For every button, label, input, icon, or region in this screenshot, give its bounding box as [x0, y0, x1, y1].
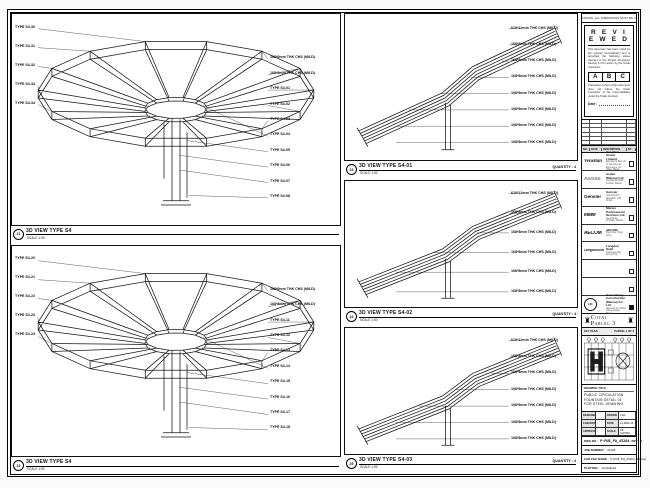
grade-a: A: [589, 73, 603, 81]
view-title: 3D VIEW TYPE S4-01: [359, 163, 412, 169]
detail-bubble: 21: [13, 229, 24, 240]
detail-number: 22: [17, 464, 21, 468]
structure-drawing: [345, 181, 577, 307]
status-checkbox: [629, 161, 635, 167]
key-plan: [582, 336, 636, 385]
signoff-table: DESIGNED- DRAWNCAD CHECKED- DATE14-MAR-1…: [582, 412, 636, 437]
quantity-label: QUANTITY : 4: [553, 459, 577, 463]
view-scale: SCALE 1:50: [359, 171, 576, 175]
consultant-row: VenetianVenetian Orient LimitedEstrada d…: [582, 153, 636, 171]
plot-row: PLOTTED : 14-MAR-16: [582, 464, 636, 472]
view-scale: SCALE 1:50: [26, 467, 339, 471]
project-name: Cotai Parcel 3: [591, 315, 628, 327]
drawing-title-label: DRAWING TITLE :: [584, 386, 634, 392]
view-title: 3D VIEW TYPE S4-02: [359, 310, 412, 316]
consultant-address: Avenida da Amizade, Macau: [606, 218, 627, 223]
view-title-row: 23 3D VIEW TYPE S4-01QUANTITY : 4 SCALE …: [344, 161, 578, 180]
quantity-label: QUANTITY : 4: [553, 165, 577, 169]
cad-file-row: CAD FILE NAME : P-PUB_PQ_45204_S4.dwg: [582, 455, 636, 464]
consultant-address: Avenida da Praia Grande, Macau: [606, 180, 627, 185]
consultant-name: Langdon Seah: [606, 245, 627, 252]
view-title-row: 25 3D VIEW TYPE S4-03QUANTITY : 4 SCALE …: [344, 455, 578, 474]
detail-bubble: 22: [13, 460, 24, 471]
drawing-sheet: TYPE S4-30TYPE S4-31TYPE S4-32TYPE S4-33…: [7, 9, 641, 477]
consultant-row: MMMMacau Professional Services Ltd.Aveni…: [582, 207, 636, 225]
stamp-title: R E V I E W E D: [588, 28, 630, 46]
consultant-logo: LangdonSeah: [584, 249, 604, 252]
view-3d-type-s4-bottom: TYPE S4-20TYPE S4-21TYPE S4-22TYPE S4-23…: [11, 245, 341, 458]
review-stamp: R E V I E W E D This document has been n…: [584, 25, 634, 117]
view-3d-type-s4-top: TYPE S4-30TYPE S4-31TYPE S4-32TYPE S4-33…: [11, 13, 341, 226]
detail-number: 21: [17, 232, 21, 236]
stamp-date-row: Date :: [588, 101, 630, 106]
drawing-title-line: FOR STEEL DRAWING: [584, 402, 634, 407]
consultant-list: VenetianVenetian Orient LimitedEstrada d…: [582, 153, 636, 314]
structure-drawing: [345, 14, 577, 160]
structure-drawing: [345, 328, 577, 454]
dwg-number: P-PUB_PQ_45204: [600, 439, 630, 443]
status-checkbox: [629, 305, 635, 311]
revision-table: NO. DATE DESCRIPTION BY: [582, 119, 636, 153]
view-3d-type-s4-02: 610*12mm THK CHS (MILD)168*8mm THK CHS (…: [344, 180, 578, 308]
consultant-logo: MMM: [584, 213, 604, 218]
detail-number: 25: [350, 462, 354, 466]
view-scale: SCALE 1:50: [26, 236, 339, 240]
status-checkbox: [629, 197, 635, 203]
consultant-row: HCHsin Chong Construction (Macau) Co. Lt…: [582, 296, 636, 313]
date-label: Date :: [588, 102, 597, 106]
consultant-row: AedasAedas (Macau) Ltd.Avenida da Praia …: [582, 171, 636, 189]
structure-drawing: [12, 14, 340, 225]
view-scale: SCALE 1:50: [359, 465, 576, 469]
consultant-logo: HC: [584, 298, 604, 311]
tower-icon: ♜: [584, 317, 591, 325]
detail-bubble: 24: [346, 311, 357, 322]
consultant-name: Venetian Orient Limited: [606, 151, 627, 162]
consultant-name: Hsin Chong Construction (Macau) Co. Ltd.: [606, 294, 627, 308]
project-banner: ♜ Cotai Parcel 3 ♜: [582, 314, 636, 328]
middle-view-column: 610*12mm THK CHS (MILD)168*8mm THK CHS (…: [342, 10, 579, 476]
view-scale: SCALE 1:50: [359, 318, 576, 322]
key-plan-drawing: [582, 336, 636, 384]
view-title-row: 22 3D VIEW TYPE S4 SCALE 1:50: [11, 457, 341, 476]
consultant-address: Wan Chai, Hong Kong: [606, 232, 627, 237]
view-title: 3D VIEW TYPE S4: [26, 228, 72, 234]
consultant-row: AECOMAECOMWan Chai, Hong Kong: [582, 225, 636, 243]
drawing-title-section: DRAWING TITLE : PUBLIC CIRCULATION FOUNT…: [582, 385, 636, 412]
status-checkbox: [629, 215, 635, 221]
view-title-row: 21 3D VIEW TYPE S4 SCALE 1:50: [11, 226, 341, 245]
view-title-row: 24 3D VIEW TYPE S4-02QUANTITY : 4 SCALE …: [344, 308, 578, 327]
consultant-logo: Venetian: [584, 159, 604, 164]
drawing-page: { "notes":{"top_strip":"DO NOT SCALE DRA…: [0, 0, 650, 488]
tower-icon: ♜: [627, 317, 634, 325]
status-checkbox: [629, 251, 635, 257]
view-title: 3D VIEW TYPE S4-03: [359, 457, 412, 463]
key-plan-header: KEY PLAN PARCEL 1 OF 3: [582, 328, 636, 336]
detail-number: 24: [350, 315, 354, 319]
view-title: 3D VIEW TYPE S4: [26, 459, 72, 465]
consultant-address: Causeway Bay, Hong Kong: [606, 252, 627, 257]
grade-b: B: [603, 73, 617, 81]
stamp-text: Consultant review of this document does …: [588, 84, 630, 98]
left-view-column: TYPE S4-30TYPE S4-31TYPE S4-32TYPE S4-33…: [8, 10, 342, 476]
stamp-grades: A B C: [588, 72, 630, 82]
detail-bubble: 23: [346, 164, 357, 175]
general-note-strip: DO NOT SCALE DRAWING. ALL DIMENSIONS MUS…: [582, 14, 636, 23]
job-number: 21328: [607, 448, 615, 452]
date-line: [599, 101, 630, 106]
key-plan-label: KEY PLAN: [584, 330, 598, 333]
dwg-number-row: DWG NO : P-PUB_PQ_45204 REV : A: [582, 437, 636, 446]
grade-c: C: [616, 73, 629, 81]
consultant-row-empty: [582, 260, 636, 278]
cad-file-name: P-PUB_PQ_45204_S4.dwg: [610, 457, 646, 461]
view-3d-type-s4-01: 610*12mm THK CHS (MILD)168*8mm THK CHS (…: [344, 13, 578, 161]
view-3d-type-s4-03: 610*12mm THK CHS (MILD)168*8mm THK CHS (…: [344, 327, 578, 455]
consultant-logo: Aedas: [584, 177, 604, 183]
consultant-name: Macau Professional Services Ltd.: [606, 207, 627, 218]
revision-letter: A: [640, 439, 642, 443]
job-number-row: JOB NUMBER : 21328: [582, 446, 636, 455]
status-checkbox: [629, 233, 635, 239]
stamp-text: This document has been noted by the rele…: [588, 48, 630, 69]
detail-bubble: 25: [346, 458, 357, 469]
quantity-label: QUANTITY : 4: [553, 312, 577, 316]
structure-drawing: [12, 246, 340, 457]
consultant-row: LangdonSeahLangdon SeahCauseway Bay, Hon…: [582, 242, 636, 260]
consultant-address: Xuhui District, Shanghai, P.R. China: [606, 195, 627, 203]
consultant-row: GenslerGenslerXuhui District, Shanghai, …: [582, 189, 636, 207]
title-block: DO NOT SCALE DRAWING. ALL DIMENSIONS MUS…: [581, 13, 637, 473]
status-checkbox: [629, 287, 635, 293]
status-checkbox: [629, 179, 635, 185]
detail-number: 23: [350, 168, 354, 172]
plot-date: 14-MAR-16: [601, 466, 616, 470]
consultant-logo: AECOM: [584, 231, 604, 236]
key-plan-parcel: PARCEL 1 OF 3: [614, 330, 634, 333]
status-checkbox: [629, 269, 635, 275]
consultant-logo: Gensler: [584, 195, 604, 200]
